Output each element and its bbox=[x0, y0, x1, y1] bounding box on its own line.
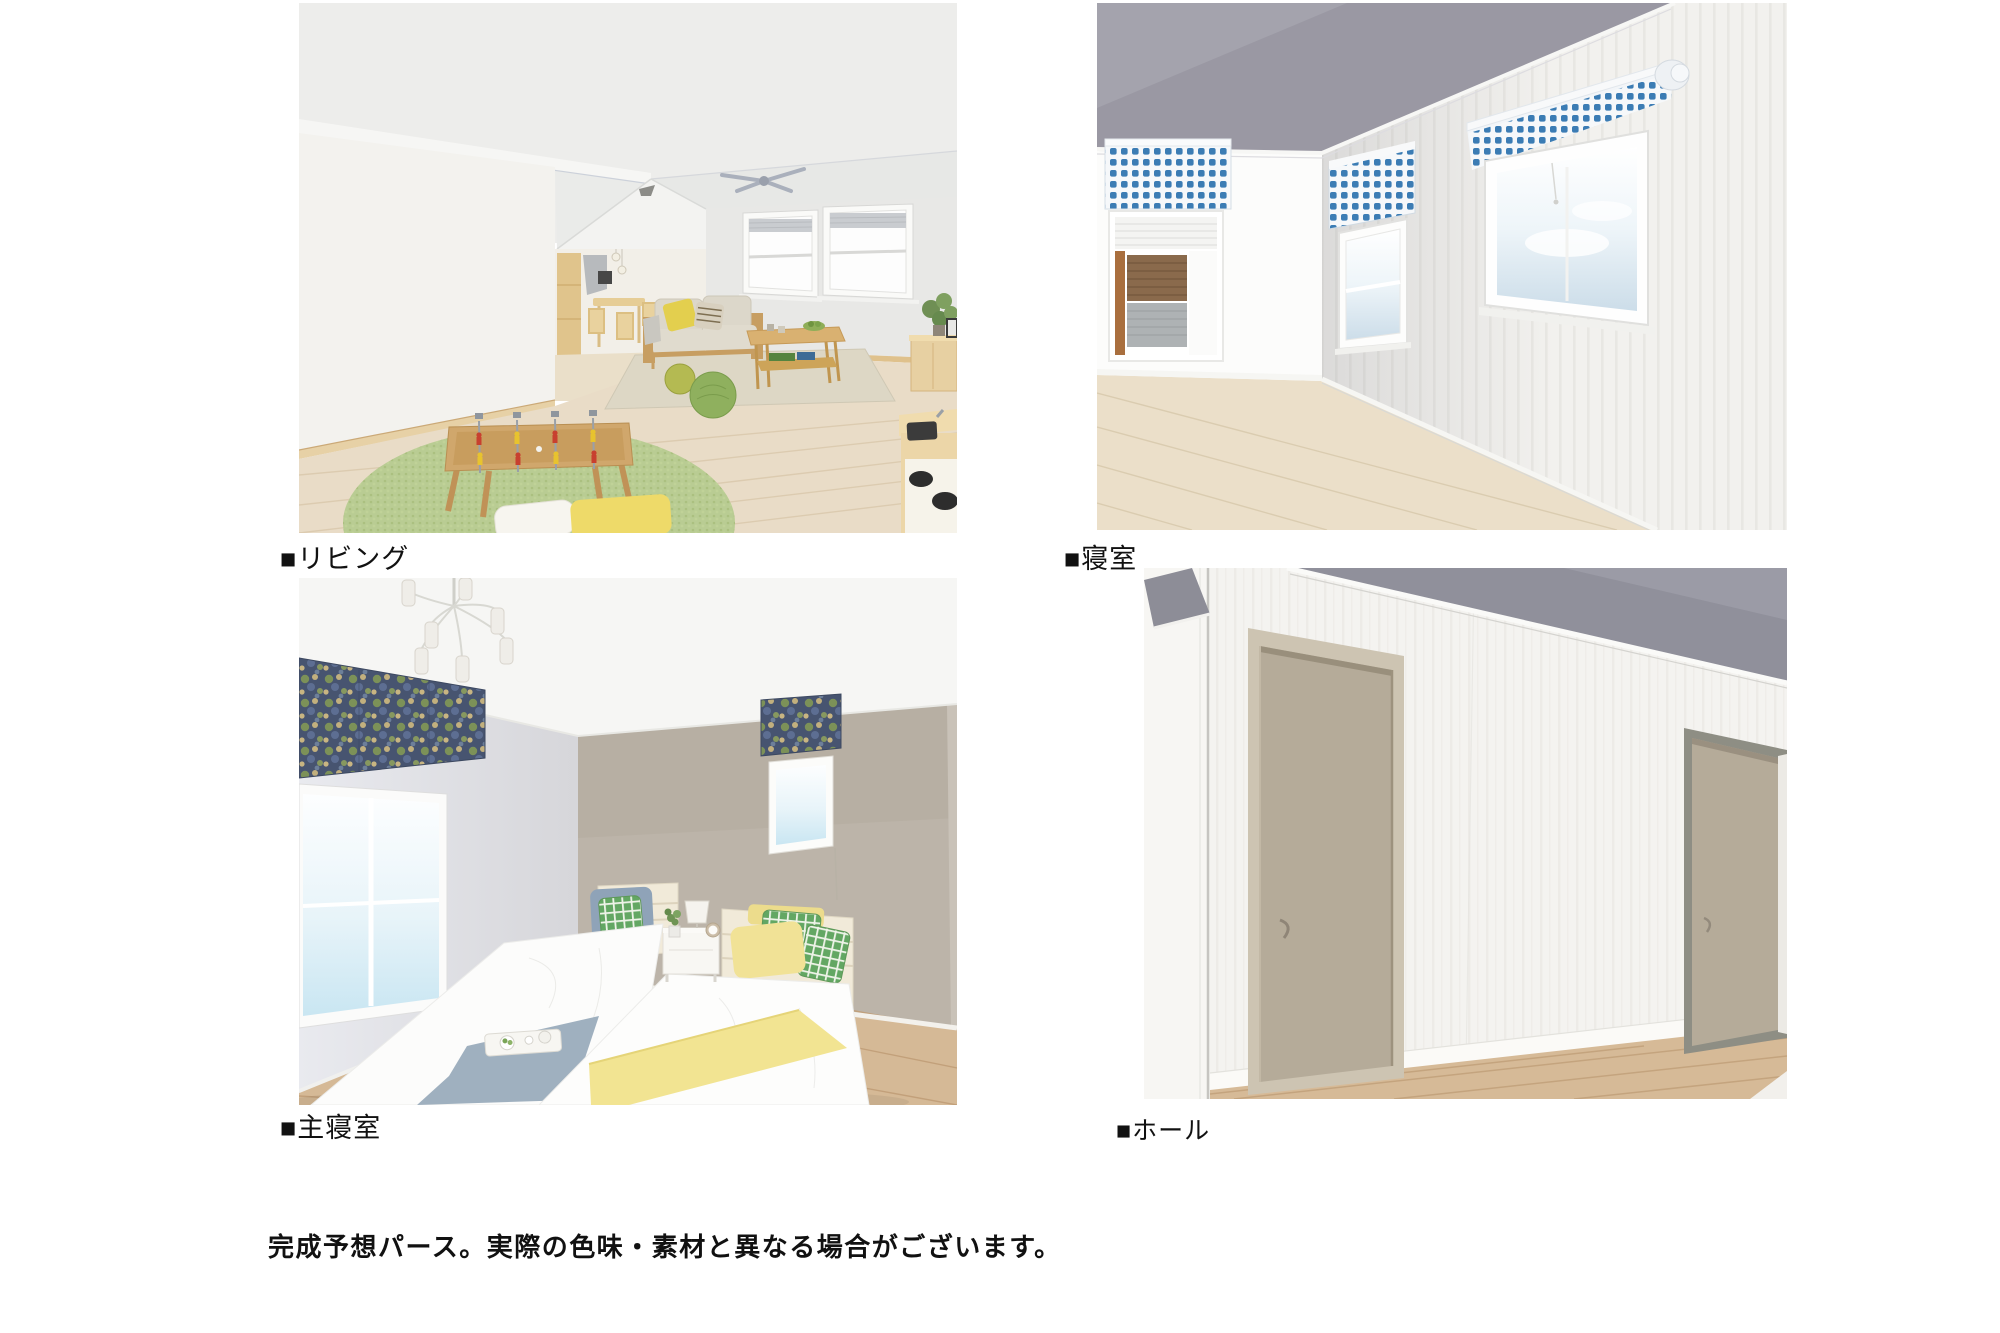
window bbox=[739, 210, 822, 300]
sofa-throw bbox=[643, 315, 661, 345]
toy-sink bbox=[907, 421, 938, 441]
window-with-view bbox=[1109, 211, 1223, 361]
bedroom-image bbox=[1097, 3, 1787, 530]
kitchen-tv bbox=[598, 271, 612, 284]
neighbor-siding bbox=[1127, 255, 1187, 301]
room-label-bedroom: ■寝室 bbox=[1064, 537, 1137, 576]
hl-left-wall bbox=[1144, 568, 1210, 1099]
window bbox=[1335, 219, 1411, 355]
dining-table bbox=[593, 298, 645, 306]
door bbox=[1248, 628, 1404, 1095]
valance-floral bbox=[761, 694, 841, 756]
bedroom-rendering bbox=[1097, 3, 1787, 530]
pendant-light-icon bbox=[612, 253, 620, 261]
window bbox=[817, 204, 919, 302]
master-bedroom-image bbox=[299, 578, 957, 1105]
room-label-hall: ■ホール bbox=[1116, 1111, 1210, 1147]
pillow-yellow bbox=[729, 920, 806, 979]
disclaimer-caption: 完成予想パース。実際の色味・素材と異なる場合がございます。 bbox=[268, 1227, 1062, 1264]
master-bedroom-rendering bbox=[299, 578, 957, 1105]
hall-image bbox=[1144, 568, 1787, 1099]
door bbox=[1684, 728, 1787, 1054]
toy-burner bbox=[909, 471, 933, 487]
green-book bbox=[769, 353, 795, 361]
lv-left-wall bbox=[299, 133, 555, 450]
room-label-master-bedroom: ■主寝室 bbox=[280, 1106, 381, 1145]
blue-book bbox=[797, 352, 815, 360]
window bbox=[299, 784, 447, 1028]
brochure-page: ■リビング ■寝室 ■主寝室 ■ホール 完成予想パース。実際の色味・素材と異なる… bbox=[0, 0, 2000, 1333]
hall-rendering bbox=[1144, 568, 1787, 1099]
breakfast-tray bbox=[484, 1029, 561, 1056]
table-lamp-icon bbox=[685, 901, 709, 923]
room-label-living: ■リビング bbox=[280, 537, 409, 576]
living-room-rendering bbox=[299, 3, 957, 533]
window bbox=[1479, 131, 1655, 335]
living-room-image bbox=[299, 3, 957, 533]
toy-burner bbox=[932, 492, 957, 510]
yellow-floor-cushion bbox=[570, 494, 673, 533]
pendant-light-icon bbox=[618, 266, 626, 274]
striped-cushion bbox=[694, 301, 725, 330]
neighbor-shutter bbox=[1127, 303, 1187, 347]
valance-blue bbox=[1105, 139, 1231, 209]
